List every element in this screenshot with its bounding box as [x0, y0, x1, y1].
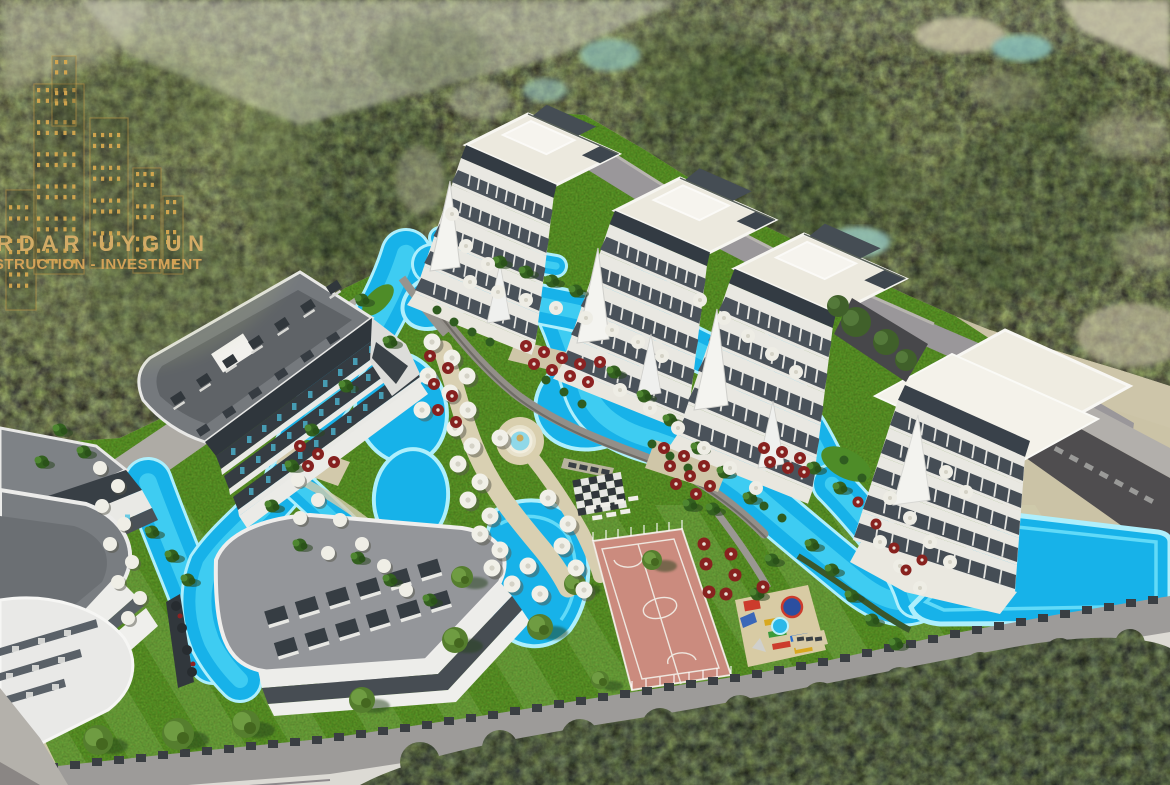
svg-text:CONSTRUCTION - INVESTMENT: CONSTRUCTION - INVESTMENT: [0, 256, 202, 273]
svg-text:SERDAR UYGUN: SERDAR UYGUN: [0, 231, 210, 256]
